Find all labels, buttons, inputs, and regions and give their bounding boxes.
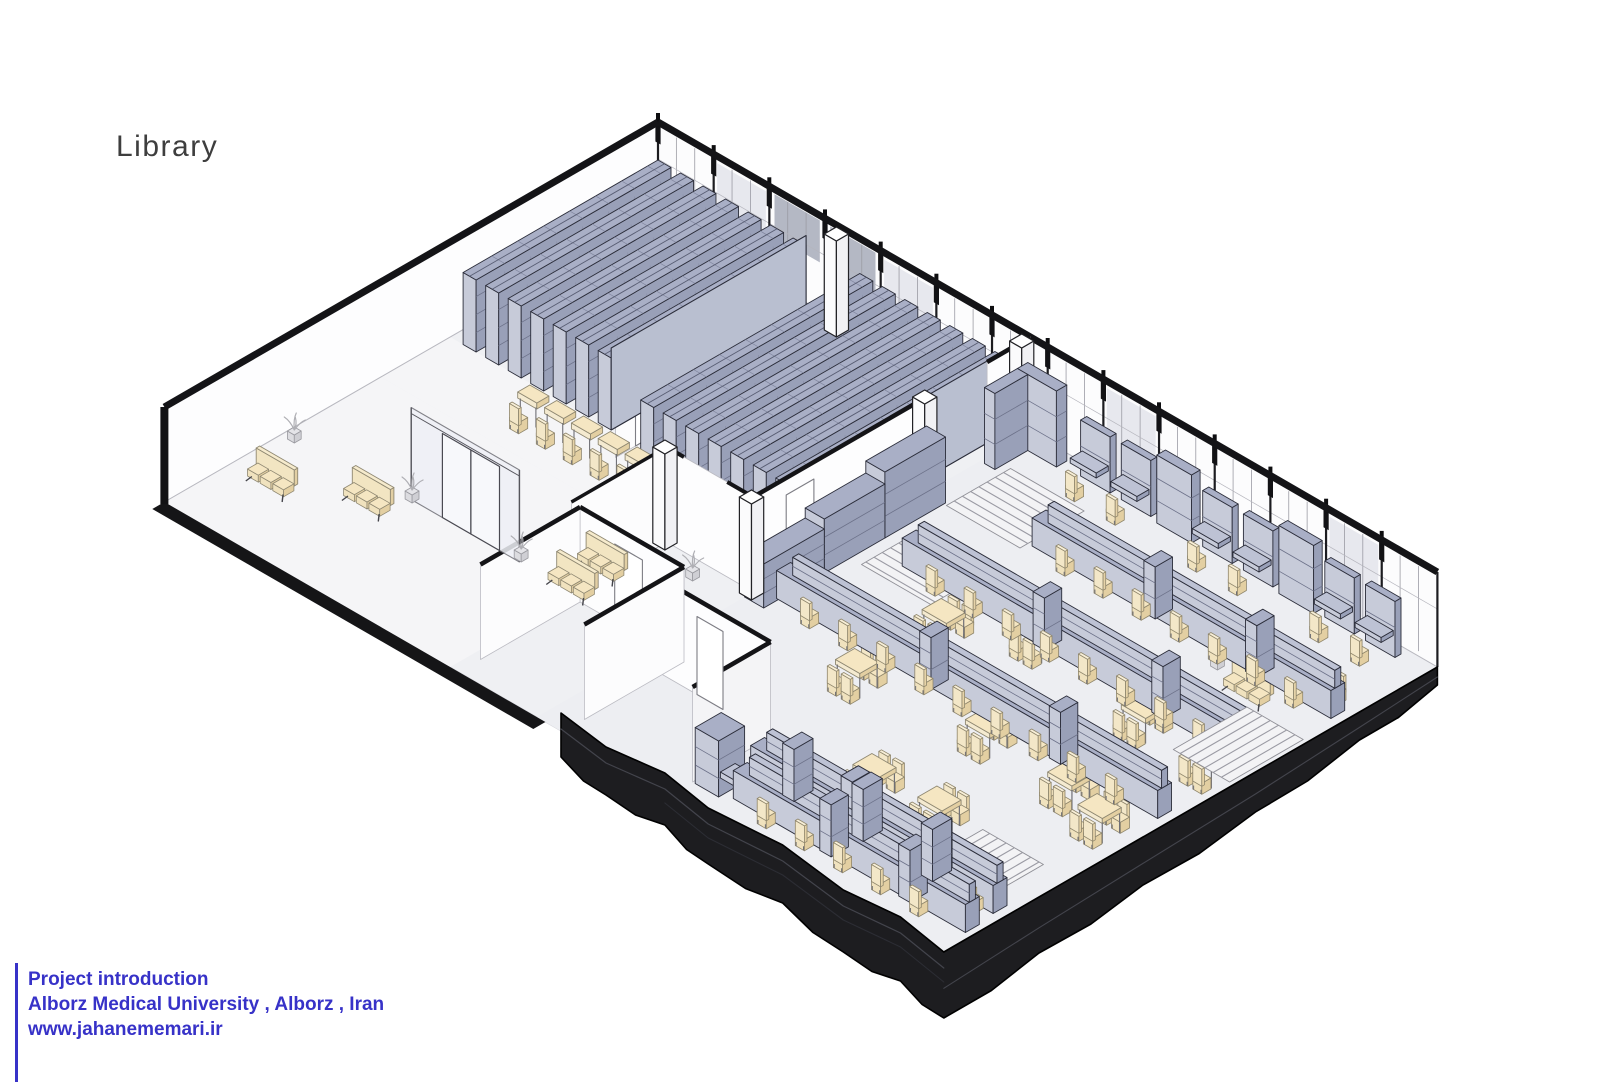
- footer-line-website: www.jahanememari.ir: [28, 1017, 384, 1042]
- drawing-title: Library: [116, 130, 218, 164]
- footer-line-project: Project introduction: [28, 967, 384, 992]
- library-axonometric-drawing: [0, 0, 1600, 1067]
- library-axonometric-sheet: Library Project introduction Alborz Medi…: [0, 0, 1600, 1067]
- footer-line-university: Alborz Medical University , Alborz , Ira…: [28, 992, 384, 1017]
- footer-caption: Project introduction Alborz Medical Univ…: [15, 963, 384, 1082]
